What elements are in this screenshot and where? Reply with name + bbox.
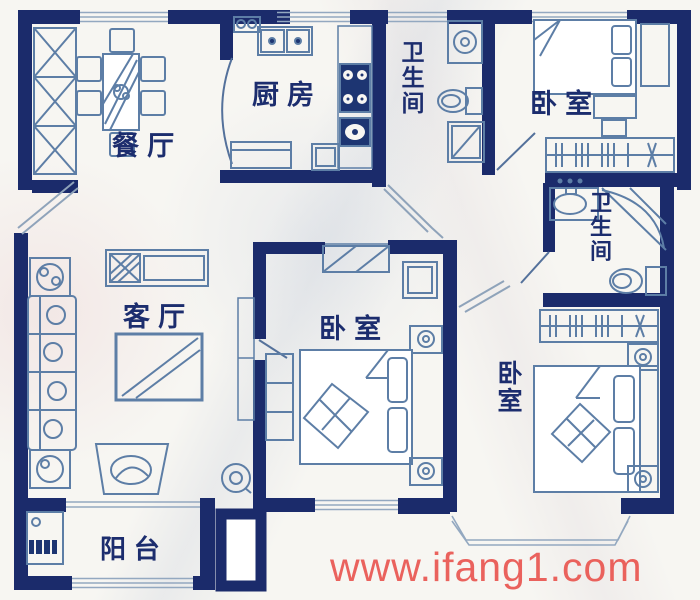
plant-table-top (30, 258, 70, 296)
wall-balcony-bottom-left (14, 576, 72, 590)
bedroom-mid-furniture (266, 244, 442, 485)
bay-window (452, 516, 630, 545)
bedroom1-desk (594, 96, 636, 136)
side-cabinet (238, 298, 254, 420)
balcony-furniture (27, 512, 63, 564)
label-bedroom-bottom: 卧室 (496, 360, 521, 415)
label-bedroom-middle: 卧室 (319, 314, 389, 346)
wall-balcony-bottom-right (193, 576, 215, 590)
bath2-door-leaf (521, 252, 549, 283)
balcony-washer (27, 512, 63, 564)
label-bath-top: 卫生间 (399, 40, 422, 116)
bath1-sink (448, 21, 482, 63)
bedroom-br-bed (534, 366, 658, 492)
balcony-sliding-door (66, 502, 200, 507)
floor-plan-canvas: 餐厅 厨房 卫生间 卧室 卫生间 卧室 卧室 客厅 阳台 www.ifang1.… (0, 0, 700, 600)
wall-entry-stub (32, 180, 78, 193)
wall-midbed-bottom-b (398, 498, 450, 514)
coffee-table (116, 334, 202, 400)
display-cabinet (34, 28, 76, 174)
wall-left-lower (14, 233, 28, 590)
wall-kitchen-bottom (220, 170, 385, 183)
bedroom-mid-dresser (266, 354, 293, 440)
wall-bath2-top (545, 173, 691, 187)
bedroom-mid-bed (300, 350, 412, 464)
wall-left-upper (18, 10, 32, 190)
label-dining: 餐厅 (112, 131, 182, 163)
kitchen-basin (340, 118, 370, 146)
bedroom1-bed (534, 20, 636, 94)
wall-living-divider-lower (253, 360, 266, 512)
wall-right-lower (660, 185, 674, 512)
bedroom-mid-closet (323, 246, 389, 272)
hall-chamfer-a (388, 185, 443, 238)
window-bath1-top (388, 13, 447, 22)
armchair (96, 444, 168, 494)
living-furniture (28, 250, 254, 494)
kitchen-table (231, 142, 291, 168)
kitchen-cart (312, 144, 339, 170)
wall-pier (221, 514, 261, 586)
wall-mid-right-divider (443, 240, 457, 512)
bath1-fixtures (438, 21, 484, 162)
double-sink (258, 27, 312, 55)
watermark-text: www.ifang1.com (330, 544, 643, 591)
bedroom1-wardrobe (546, 138, 674, 172)
wall-kitchen-right (372, 10, 386, 187)
window-dining-top (80, 13, 168, 22)
wall-midbed-top-left (253, 242, 325, 254)
label-bedroom-top-right: 卧室 (530, 89, 600, 121)
label-kitchen: 厨房 (252, 80, 322, 112)
floor-fan (222, 464, 251, 493)
bedroom-br-furniture (534, 310, 658, 492)
wall-kitchen-divider (220, 10, 233, 60)
bath2-toilet (610, 267, 666, 295)
label-balcony: 阳台 (100, 535, 168, 566)
sofa (28, 296, 76, 450)
tv-cabinet (106, 250, 208, 286)
stove (340, 64, 370, 112)
bath1-washer (448, 122, 484, 162)
entry-chamfer-outer (22, 188, 78, 234)
wall-balcony-top-left (14, 498, 66, 512)
wall-living-divider-upper (253, 242, 266, 339)
midbed-door-leaf (259, 340, 287, 358)
bedroom-mid-desk (403, 262, 437, 298)
bedroom1-side-cabinet (641, 24, 669, 86)
plant-table-bottom (30, 450, 70, 488)
label-living: 客厅 (123, 302, 193, 334)
bedroom-mid-nightstand-top (410, 326, 442, 353)
window-midbed-bottom (315, 501, 398, 510)
bedroom-mid-nightstand-bottom (410, 458, 442, 485)
wall-right-upper (677, 10, 691, 190)
bath1-toilet (438, 88, 482, 114)
label-bath-right: 卫生间 (588, 191, 610, 264)
hall-chamfer-b (384, 189, 428, 232)
window-balcony-bottom (72, 579, 193, 588)
bedroom-br-wardrobe (540, 310, 658, 342)
dining-table (103, 54, 139, 130)
bedroom1-door-leaf (497, 133, 535, 170)
wall-rightbed-bottom-corner (621, 498, 674, 514)
